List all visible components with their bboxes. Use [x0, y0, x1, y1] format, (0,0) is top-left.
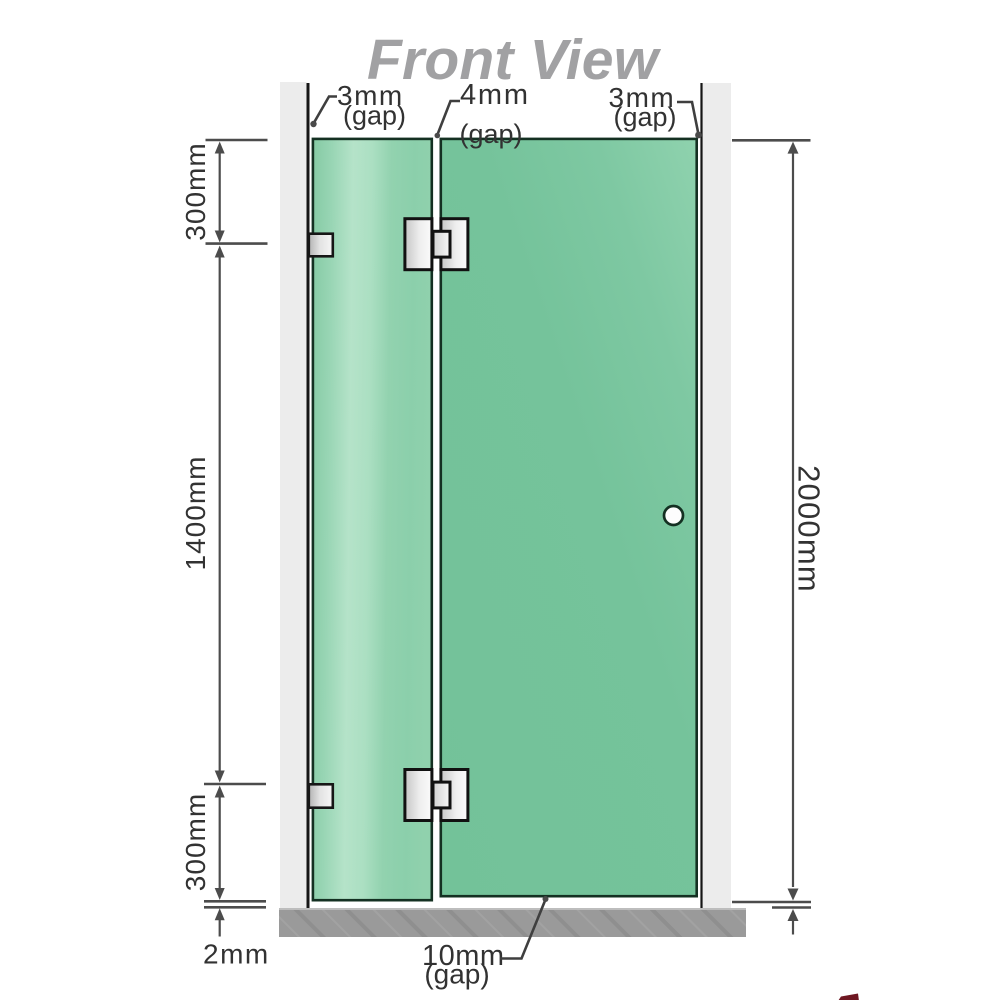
svg-text:(gap): (gap) [613, 102, 676, 132]
svg-text:1400mm: 1400mm [180, 456, 211, 571]
svg-text:(gap): (gap) [343, 101, 406, 131]
svg-text:300mm: 300mm [180, 793, 211, 891]
svg-text:2mm: 2mm [203, 939, 270, 970]
svg-text:300mm: 300mm [180, 142, 211, 240]
svg-text:4mm: 4mm [460, 79, 530, 111]
svg-text:2000mm: 2000mm [792, 465, 827, 593]
svg-text:(gap): (gap) [424, 959, 489, 990]
svg-text:(gap): (gap) [459, 119, 522, 149]
